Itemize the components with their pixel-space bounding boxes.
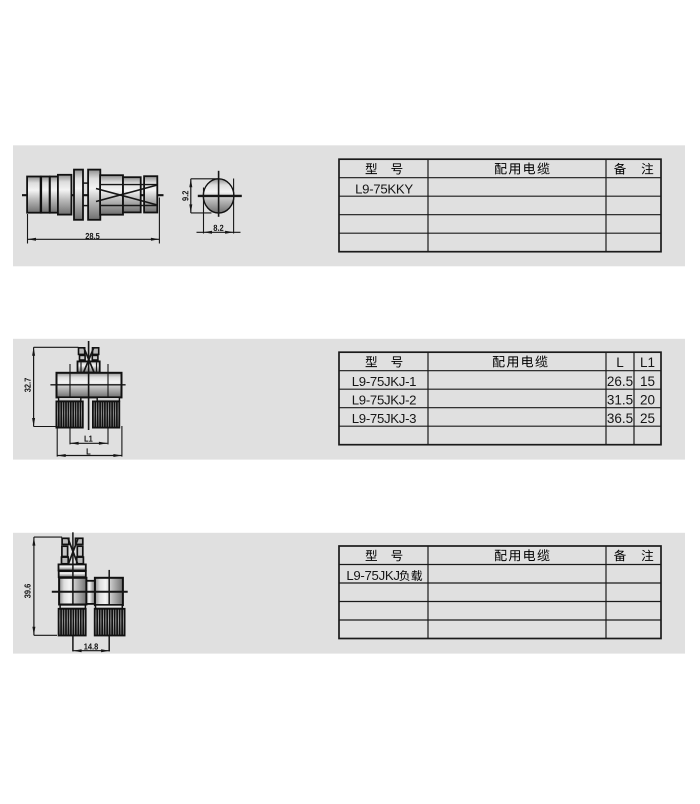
svg-text:L9-75KKY: L9-75KKY: [355, 182, 413, 197]
svg-text:20: 20: [640, 392, 655, 407]
svg-text:L9-75JKJ-2: L9-75JKJ-2: [352, 392, 416, 407]
svg-text:36.5: 36.5: [607, 411, 633, 426]
svg-text:L1: L1: [640, 355, 655, 370]
svg-text:26.5: 26.5: [607, 374, 633, 389]
svg-text:25: 25: [640, 411, 655, 426]
svg-text:L9-75JKJ-3: L9-75JKJ-3: [352, 411, 416, 426]
svg-text:L: L: [616, 355, 624, 370]
svg-text:L9-75JKJ: L9-75JKJ: [346, 568, 399, 583]
svg-text:15: 15: [640, 374, 655, 389]
svg-text:L9-75JKJ-1: L9-75JKJ-1: [352, 374, 416, 389]
svg-text:31.5: 31.5: [607, 392, 633, 407]
